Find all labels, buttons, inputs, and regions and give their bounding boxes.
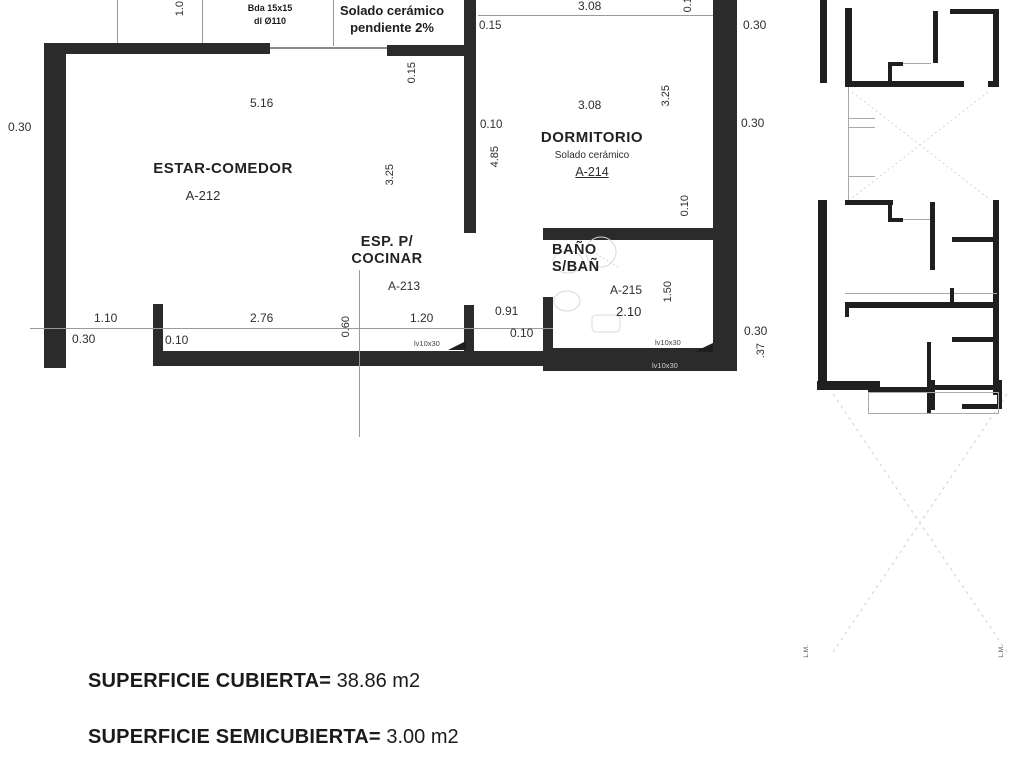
dim-top-offset: 1.0 [175, 1, 186, 16]
keyplan-wall [930, 202, 935, 270]
keyplan-wall [845, 81, 964, 87]
wall-top-a [44, 43, 270, 54]
drain-note-line1: Bda 15x15 [248, 3, 293, 13]
dim-cocina-bano: 0.91 [495, 305, 518, 318]
dim-wall-010-mid: 0.10 [480, 119, 502, 132]
dim-dorm-width: 3.08 [578, 99, 601, 112]
keyplan-tick [848, 118, 875, 119]
keyplan-tick [848, 127, 875, 128]
lot-line-label-right: L.M. [999, 645, 1006, 658]
drain-note-line2: dl Ø110 [254, 16, 286, 26]
keyplan-wall [845, 302, 849, 317]
keyplan-wall [950, 288, 954, 308]
room-cocinar: ESP. P/ COCINAR [343, 234, 431, 269]
dim-wall-010-bano: 0.10 [510, 327, 533, 340]
keyplan-wall [845, 200, 893, 205]
tick-line-b [202, 0, 203, 43]
dim-wall-015-b: 0.15 [407, 62, 418, 83]
keyplan-wall [845, 8, 852, 83]
room-cocinar-line2: COCINAR [351, 251, 422, 267]
beam-label-b: lv10x30 [655, 339, 681, 347]
tick-line-a [117, 0, 118, 43]
keyplan-line [848, 87, 849, 200]
wall-bottom [153, 351, 553, 366]
room-cocinar-code: A-213 [388, 280, 420, 293]
wall-center-lower [464, 305, 474, 355]
wall-left [44, 43, 66, 368]
lot-line-label-left: L.M. [804, 645, 811, 658]
dim-bottom-276: 2.76 [250, 312, 273, 325]
keyplan-wall [820, 0, 827, 83]
dim-estar-width: 5.16 [250, 97, 273, 110]
keyplan-line [845, 293, 997, 294]
dim-dorm-height: 3.25 [661, 85, 672, 106]
wall-bottom-bano [543, 348, 737, 371]
superficie-cubierta-label: SUPERFICIE CUBIERTA= [88, 670, 331, 692]
ceramic-note-line2: pendiente 2% [350, 20, 434, 35]
keyplan-wall [950, 9, 997, 14]
dim-bottom-110: 1.10 [94, 312, 117, 325]
wall-bano-left [543, 297, 553, 366]
keyplan-wall [952, 337, 997, 342]
ceramic-note-line1: Solado cerámico [340, 3, 444, 18]
keyplan-wall [952, 237, 997, 242]
room-bano-line2: S/BAÑ [552, 259, 600, 275]
dim-estar-height: 3.25 [385, 164, 396, 185]
keyplan-wall [993, 9, 999, 87]
wall-top-b [387, 45, 476, 56]
dim-bano-height: 1.50 [663, 281, 674, 302]
room-bano: BAÑO S/BAÑ [552, 242, 600, 277]
room-dormitorio: DORMITORIO [533, 130, 651, 147]
wall-pillar-entry [153, 304, 163, 366]
dim-bottom-010: 0.10 [165, 334, 188, 347]
keyplan-wall [932, 385, 1000, 390]
dim-beam-height: .37 [756, 343, 767, 358]
room-dormitorio-code: A-214 [533, 166, 651, 180]
keyplan-door-line [903, 63, 931, 64]
superficie-semicubierta-value: 3.00 m2 [386, 726, 458, 748]
wall-center-upper [464, 0, 476, 233]
keyplan-wall [888, 218, 903, 222]
dimension-line-bottom [30, 328, 553, 329]
dim-right-030-b: 0.30 [741, 117, 764, 130]
room-bano-code: A-215 [610, 284, 642, 297]
centerline-cocina [359, 270, 360, 437]
ceramic-note: Solado cerámico pendiente 2% [326, 3, 458, 37]
keyplan-tick [848, 176, 875, 177]
dim-wall-015-a: 0.15 [479, 20, 501, 33]
floorplan-sheet: 1.0 Bda 15x15 dl Ø110 Solado cerámico pe… [0, 0, 1024, 768]
opening-line-top [270, 47, 387, 49]
keyplan-wall [888, 62, 892, 83]
dim-left-030: 0.30 [8, 121, 31, 134]
room-estar-comedor-code: A-212 [140, 189, 266, 203]
room-cocinar-line1: ESP. P/ [361, 234, 413, 250]
superficie-cubierta-value: 38.86 m2 [337, 670, 420, 692]
dim-bano-width: 2.10 [616, 305, 641, 319]
room-bano-line1: BAÑO [552, 242, 597, 258]
room-estar-comedor: ESTAR-COMEDOR [140, 161, 306, 178]
superficie-cubierta: SUPERFICIE CUBIERTA= 38.86 m2 [88, 670, 420, 693]
dim-right-030-c: 0.30 [744, 325, 767, 338]
lot-cross-dashes [833, 394, 1007, 652]
courtyard-cross-dashes [852, 92, 988, 198]
dim-right-030-a: 0.30 [743, 19, 766, 32]
beam-label-c: lv10x30 [652, 362, 678, 370]
dim-dorm-width-top: 3.08 [578, 0, 601, 13]
wall-dormitorio-bottom [543, 228, 713, 240]
wall-right [713, 0, 737, 371]
room-dormitorio-floor: Solado cerámico [533, 150, 651, 161]
dim-wall-010-dorm: 0.10 [680, 195, 691, 216]
drain-note: Bda 15x15 dl Ø110 [238, 2, 302, 27]
keyplan-wall [993, 200, 999, 395]
keyplan-wall [933, 11, 938, 63]
keyplan-wall [818, 200, 827, 390]
keyplan-door-line [903, 219, 930, 220]
dim-pasillo-height: 4.85 [490, 146, 501, 167]
dim-wall-010-top: 0.10 [683, 0, 694, 12]
dim-bottom-030: 0.30 [72, 333, 95, 346]
superficie-semicubierta-label: SUPERFICIE SEMICUBIERTA= [88, 726, 381, 748]
dim-bottom-120: 1.20 [410, 312, 433, 325]
dim-bottom-060: 0.60 [341, 316, 352, 337]
beam-label-a: lv10x30 [414, 340, 440, 348]
keyplan-wall [845, 302, 997, 308]
superficie-semicubierta: SUPERFICIE SEMICUBIERTA= 3.00 m2 [88, 726, 459, 749]
dimension-line-top-right [478, 15, 713, 16]
keyplan-patio-outline [868, 392, 999, 414]
